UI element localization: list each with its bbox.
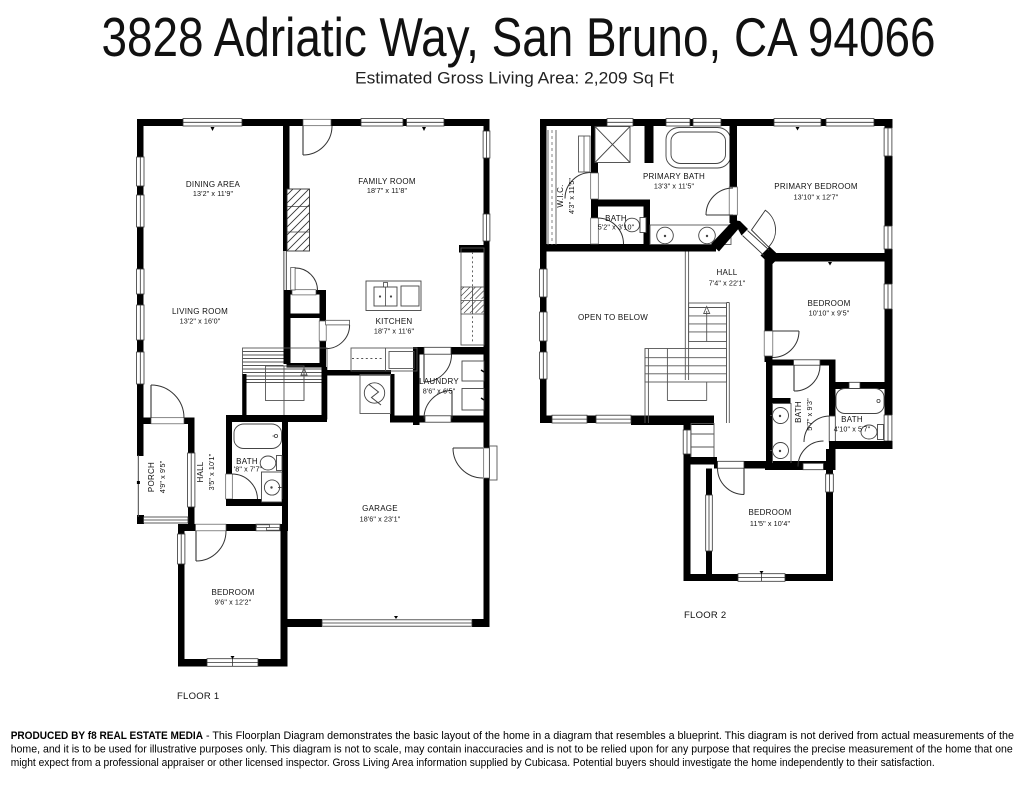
svg-text:might expect from a profession: might expect from a professional apprais… [11, 757, 935, 769]
svg-text:- This Floorplan Diagram demon: - This Floorplan Diagram demonstrates th… [203, 730, 1014, 742]
svg-text:home, and it is to be used for: home, and it is to be used for illustrat… [11, 744, 1013, 756]
svg-text:PRODUCED BY f8 REAL ESTATE MED: PRODUCED BY f8 REAL ESTATE MEDIA [11, 730, 204, 742]
